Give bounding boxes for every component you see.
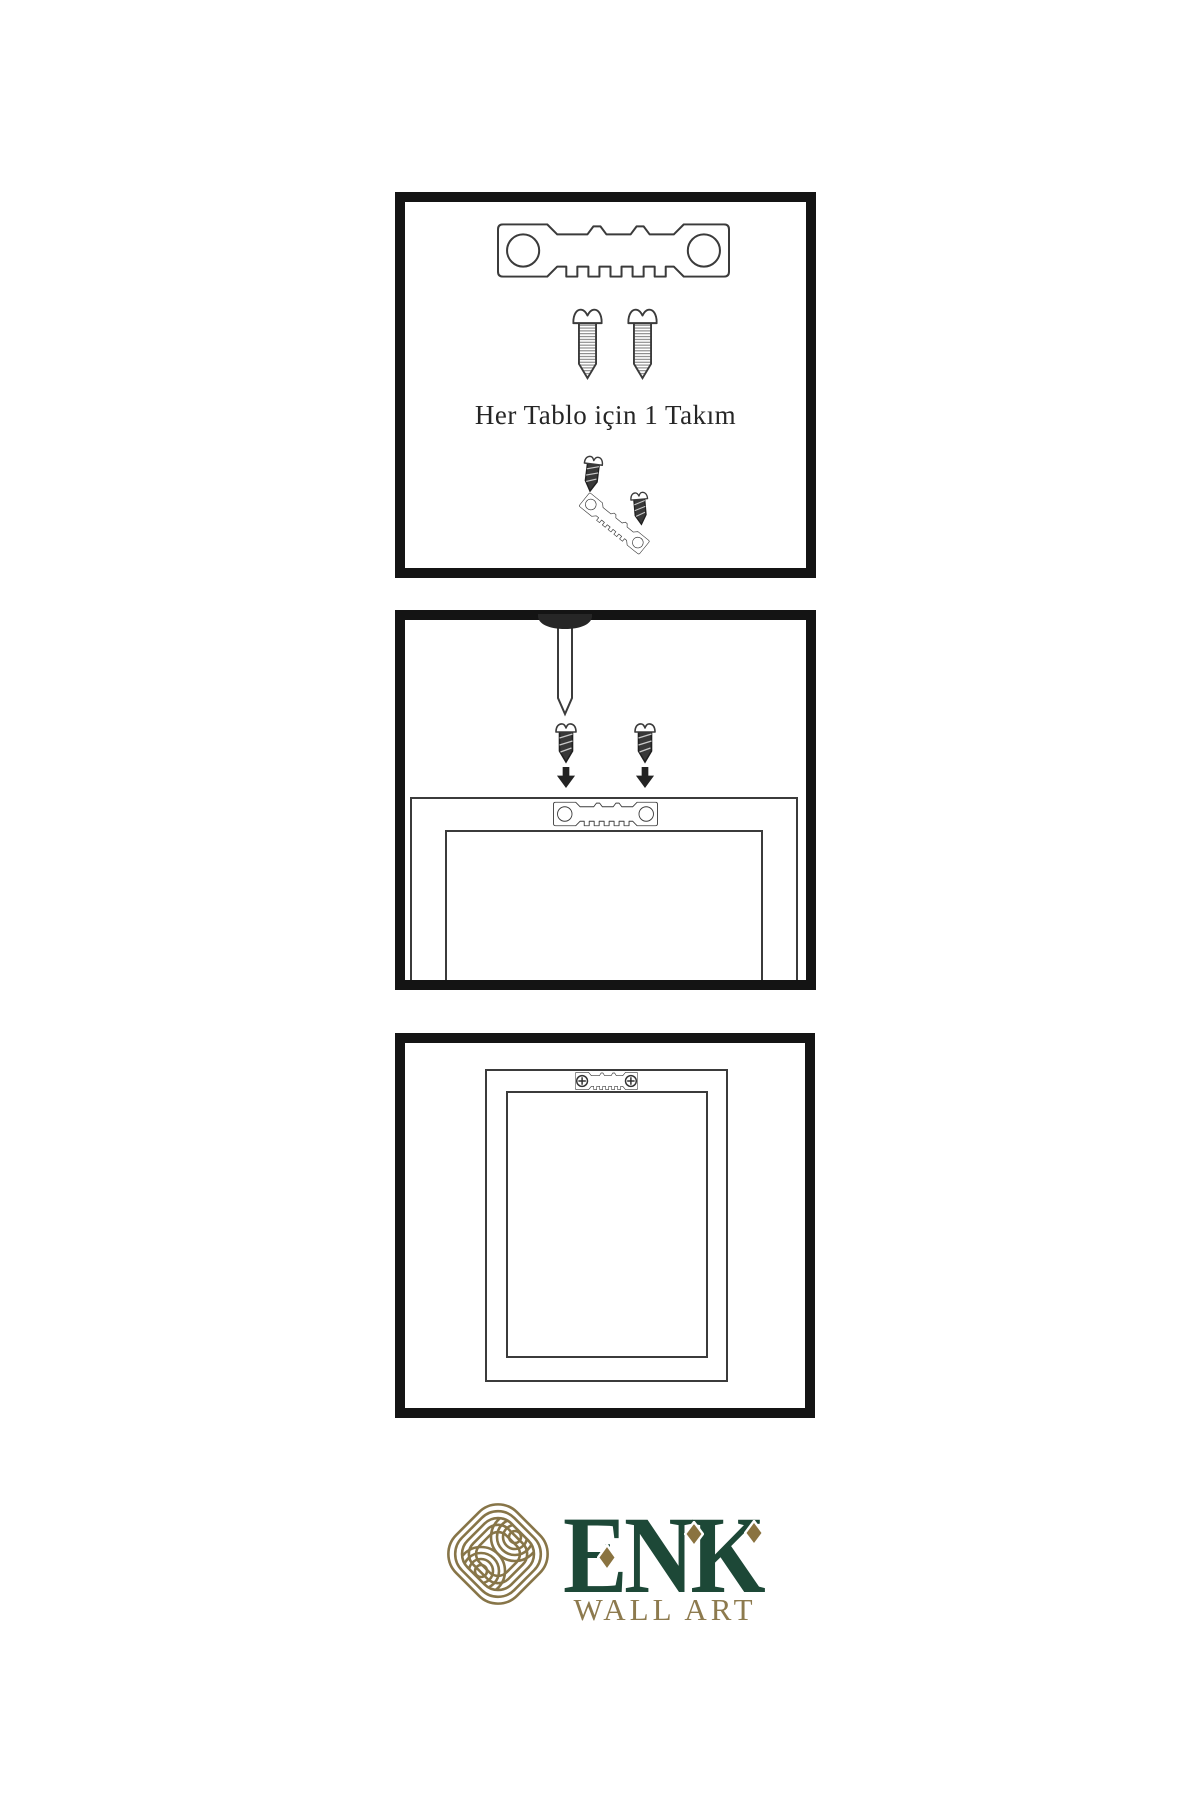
frame-inner-outline: [506, 1091, 708, 1358]
threaded-screw-icon: [572, 307, 603, 381]
hanging-instruction-sheet: Her Tablo için 1 Takım: [0, 0, 1200, 1800]
diamond-icon: [597, 1544, 617, 1571]
mounted-sawtooth-hanger-icon: [575, 1072, 638, 1090]
threaded-screw-icon: [627, 307, 658, 381]
diamond-icon: [684, 1521, 704, 1547]
brand-tagline: WALL ART: [563, 1592, 767, 1628]
dark-screw-icon: [555, 722, 577, 764]
sawtooth-hanger-icon: [497, 223, 730, 278]
step-2-panel: [395, 610, 816, 990]
dark-screw-icon: [634, 722, 656, 764]
sawtooth-hanger-icon: [553, 801, 658, 827]
down-arrow-icon: [556, 767, 576, 788]
down-arrow-icon: [635, 767, 655, 788]
step-3-panel: [395, 1033, 815, 1418]
frame-inner-outline: [445, 830, 763, 980]
step-1-panel: Her Tablo için 1 Takım: [395, 192, 816, 578]
step-1-caption: Her Tablo için 1 Takım: [405, 400, 806, 431]
hanger-assembly-icon: [578, 453, 670, 565]
wall-nail-icon: [537, 614, 593, 718]
knot-logo-icon: [436, 1483, 560, 1624]
diamond-icon: [744, 1520, 764, 1546]
